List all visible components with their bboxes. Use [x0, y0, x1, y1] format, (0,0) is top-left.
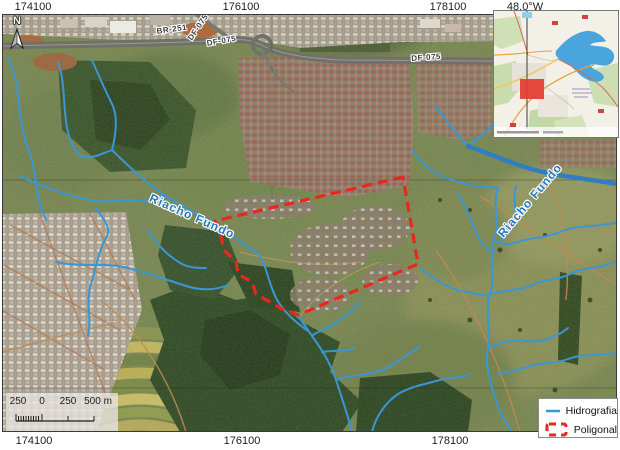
north-label: N [7, 15, 27, 27]
grid-label-top-3: 178100 [430, 1, 467, 13]
inset-highlight-rectangle [520, 79, 544, 99]
scale-bar: 250 0 250 500 m [6, 393, 118, 431]
north-arrow: N [7, 15, 27, 56]
scale-label-500m: 500 m [84, 396, 112, 407]
scale-label-250-right: 250 [60, 396, 77, 407]
grid-label-bottom-3: 178100 [432, 435, 469, 447]
legend-item-poligonal: Poligonal [539, 420, 617, 439]
scale-label-0: 0 [39, 396, 45, 407]
legend-item-hidrografia: Hidrografia [539, 401, 617, 420]
scale-bar-ticks [6, 411, 118, 427]
legend-label-hidrografia: Hidrografia [566, 405, 617, 417]
grid-label-bottom-2: 176100 [224, 435, 261, 447]
grid-label-bottom-1: 174100 [16, 435, 53, 447]
polygon-swatch [544, 422, 568, 437]
inset-locator-map [493, 10, 619, 138]
compass-arrow-icon [7, 27, 27, 51]
grid-label-top-1: 174100 [15, 1, 52, 13]
hydrography-line-swatch [544, 407, 560, 415]
legend-label-poligonal: Poligonal [574, 424, 617, 436]
inset-map-graphic [494, 11, 618, 137]
scale-label-250-left: 250 [10, 396, 27, 407]
legend: Hidrografia Poligonal [538, 398, 618, 438]
map-figure: 174100 176100 178100 48.0°W [0, 0, 620, 450]
grid-label-top-2: 176100 [223, 1, 260, 13]
